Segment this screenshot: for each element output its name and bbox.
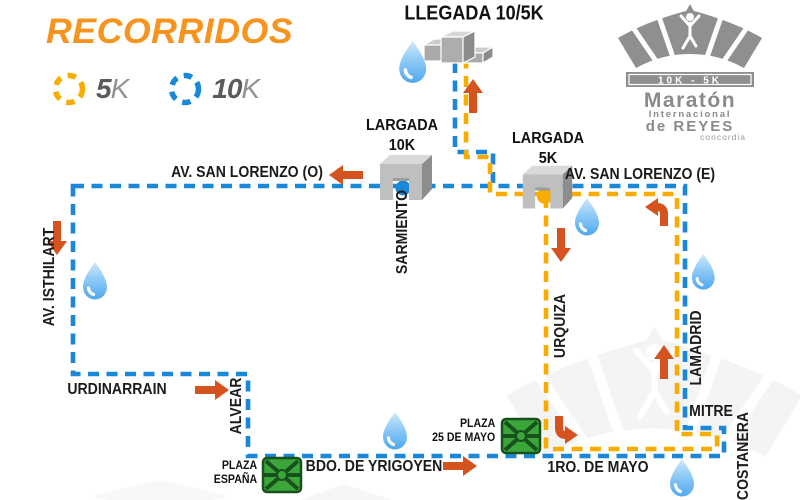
start-5k-label: LARGADA 5K (512, 129, 584, 169)
start-10k-label: LARGADA 10K (366, 116, 438, 156)
plaza-25-de-mayo-label: PLAZA 25 DE MAYO (432, 418, 495, 446)
legend-5k-label: 5K (96, 73, 128, 105)
legend-item-5k: 5K (50, 70, 128, 108)
plaza-25-line1: PLAZA (432, 418, 495, 432)
water-drop-icon (692, 254, 715, 290)
street-label-urquiza: URQUIZA (552, 294, 570, 358)
finish-label: LLEGADA 10/5K (404, 2, 543, 27)
street-label-1ro-de-mayo: 1RO. DE MAYO (547, 459, 648, 477)
water-drop-icon (383, 412, 407, 450)
arrow-right-icon (443, 456, 477, 476)
street-label-san-lorenzo-e: AV. SAN LORENZO (E) (565, 166, 715, 184)
plaza-espana-line2: ESPAÑA (214, 474, 257, 488)
plaza-25-line2: 25 DE MAYO (432, 432, 495, 446)
water-drop-icon (575, 198, 599, 236)
legend-10k-label: 10K (212, 73, 259, 105)
legend-item-10k: 10K (166, 70, 259, 108)
start-10k-line2: 10K (366, 136, 438, 156)
plaza-espana-line1: PLAZA (214, 460, 257, 474)
route-legend: 5K 10K (50, 70, 259, 108)
arrow-right-icon (195, 380, 229, 400)
water-drop-icon (670, 459, 694, 497)
logo-crown-runner-icon (618, 4, 762, 68)
logo-distances: 10K - 5K (658, 76, 722, 87)
legend-10k-circle-icon (166, 70, 204, 108)
start-10k-line1: LARGADA (366, 116, 438, 136)
arrow-down-icon (551, 228, 571, 262)
street-label-costanera: COSTANERA (735, 412, 753, 500)
arrow-turn-left-icon (645, 198, 664, 226)
plaza-espana-label: PLAZA ESPAÑA (214, 460, 257, 488)
street-label-alvear: ALVEAR (228, 378, 246, 435)
street-label-sarmiento: SARMIENTO (394, 190, 412, 274)
plaza-espana-icon (263, 458, 301, 492)
legend-5k-num: 5 (96, 73, 111, 104)
legend-5k-circle-icon (50, 70, 88, 108)
street-label-isthilart: AV. ISTHILART (41, 228, 59, 327)
water-drop-icon (83, 262, 107, 300)
street-label-lamadrid: LAMADRID (688, 310, 706, 385)
page-title: RECORRIDOS (46, 12, 293, 52)
legend-10k-num: 10 (212, 73, 241, 104)
event-logo: 10K - 5K Maratón Internacional de REYES … (618, 4, 762, 142)
start-5k-line1: LARGADA (512, 129, 584, 149)
logo-city: concordia (700, 132, 746, 142)
route-map-poster: 10K - 5K Maratón Internacional de REYES … (0, 0, 800, 500)
street-label-san-lorenzo-o: AV. SAN LORENZO (O) (171, 164, 323, 182)
arrow-left-icon (329, 165, 363, 185)
legend-5k-unit: K (111, 73, 129, 104)
legend-10k-unit: K (241, 73, 259, 104)
street-label-yrigoyen: BDO. DE YRIGOYEN (306, 458, 443, 476)
street-label-urdinarrain: URDINARRAIN (67, 381, 166, 399)
water-drop-icon (399, 41, 426, 83)
plaza-25-de-mayo-icon (502, 419, 540, 453)
finish-podium-icon (424, 31, 493, 63)
street-label-mitre: MITRE (689, 403, 733, 421)
